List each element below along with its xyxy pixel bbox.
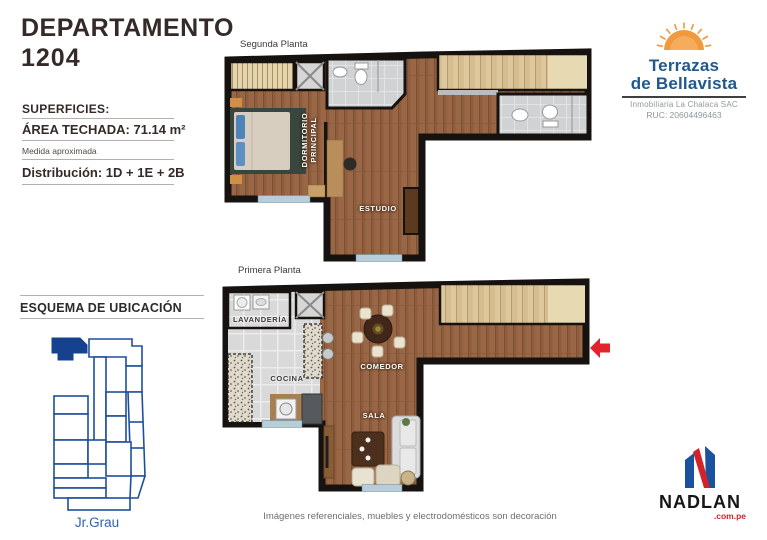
coffee-table <box>352 432 384 466</box>
room-label-estudio: ESTUDIO <box>338 204 418 213</box>
first-floor-plan: LAVANDERÍA COCINA COMEDOR SALA <box>222 278 592 496</box>
nightstand <box>230 98 242 107</box>
stairs <box>438 54 588 95</box>
bathroom-second <box>498 94 588 135</box>
terrazas-subtitle: Inmobiliaria La Chalaca SAC <box>616 100 752 109</box>
sun-icon <box>654 20 714 52</box>
side-table <box>401 471 415 485</box>
distribution-label: Distribución: <box>22 165 102 180</box>
logo-divider <box>622 96 746 98</box>
nadlan-logo: NADLAN .com.pe <box>648 446 752 521</box>
page-title: DEPARTAMENTO <box>21 14 234 43</box>
measure-note: Medida aproximada <box>22 146 97 156</box>
terrazas-name-line1: Terrazas <box>616 57 752 75</box>
room-label-lavanderia: LAVANDERÍA <box>222 315 298 324</box>
divider <box>22 118 174 119</box>
bar-stool <box>323 333 334 344</box>
unit-number: 1204 <box>21 44 81 73</box>
window <box>356 255 402 262</box>
room-label-sala: SALA <box>334 411 414 420</box>
stove <box>270 394 302 424</box>
first-floor-title: Primera Planta <box>238 265 301 276</box>
terrazas-ruc: RUC: 20604496463 <box>616 110 752 120</box>
superficies-heading: SUPERFICIES: <box>22 102 110 116</box>
window <box>362 485 402 492</box>
street-label: Jr.Grau <box>45 515 149 530</box>
divider <box>22 159 174 160</box>
fridge <box>302 394 322 424</box>
location-map-diagram <box>48 336 152 512</box>
divider <box>22 184 174 185</box>
window <box>258 196 310 203</box>
first-floor-drawing <box>222 278 592 496</box>
closet <box>230 62 294 90</box>
terrazas-logo: Terrazas de Bellavista Inmobiliaria La C… <box>616 20 752 120</box>
kitchen-counter <box>304 324 322 378</box>
entrance-arrow-icon <box>590 335 610 361</box>
desk <box>327 140 343 197</box>
terrazas-name-line2: de Bellavista <box>616 75 752 93</box>
bed <box>230 108 306 174</box>
divider <box>22 140 174 141</box>
location-title: ESQUEMA DE UBICACIÓN <box>20 301 182 315</box>
highlighted-unit <box>52 338 87 360</box>
desk-chair <box>344 158 357 171</box>
footer-note: Imágenes referenciales, muebles y electr… <box>220 511 600 522</box>
distribution-value: 1D + 1E + 2B <box>106 165 185 180</box>
room-label-dormitorio: DORMITORIO PRINCIPAL <box>300 108 318 172</box>
flyer-page: DEPARTAMENTO 1204 SUPERFICIES: ÁREA TECH… <box>0 0 767 540</box>
area-label: ÁREA TECHADA: <box>22 122 130 137</box>
tv-console <box>324 426 334 478</box>
kitchen-counter <box>228 354 252 422</box>
area-row: ÁREA TECHADA: 71.14 m² <box>22 122 186 137</box>
nightstand <box>230 175 242 184</box>
distribution-row: Distribución: 1D + 1E + 2B <box>22 165 185 180</box>
second-floor-drawing <box>224 48 594 264</box>
armchair <box>352 468 374 486</box>
bathroom-main <box>327 59 405 108</box>
window <box>262 421 302 428</box>
area-value: 71.14 m² <box>133 122 185 137</box>
bar-stool <box>323 349 334 360</box>
divider <box>20 295 204 296</box>
stairs <box>440 284 586 324</box>
dresser <box>308 185 325 197</box>
elevator-icon <box>296 292 324 318</box>
nadlan-name: NADLAN <box>648 493 752 511</box>
second-floor-plan: DORMITORIO PRINCIPAL ESTUDIO <box>224 48 594 264</box>
nadlan-domain: .com.pe <box>648 511 752 521</box>
room-label-comedor: COMEDOR <box>342 362 422 371</box>
divider <box>20 318 204 319</box>
room-label-cocina: COCINA <box>247 374 327 383</box>
elevator-icon <box>296 62 324 90</box>
armchair <box>376 465 400 486</box>
nadlan-n-icon <box>683 446 717 488</box>
